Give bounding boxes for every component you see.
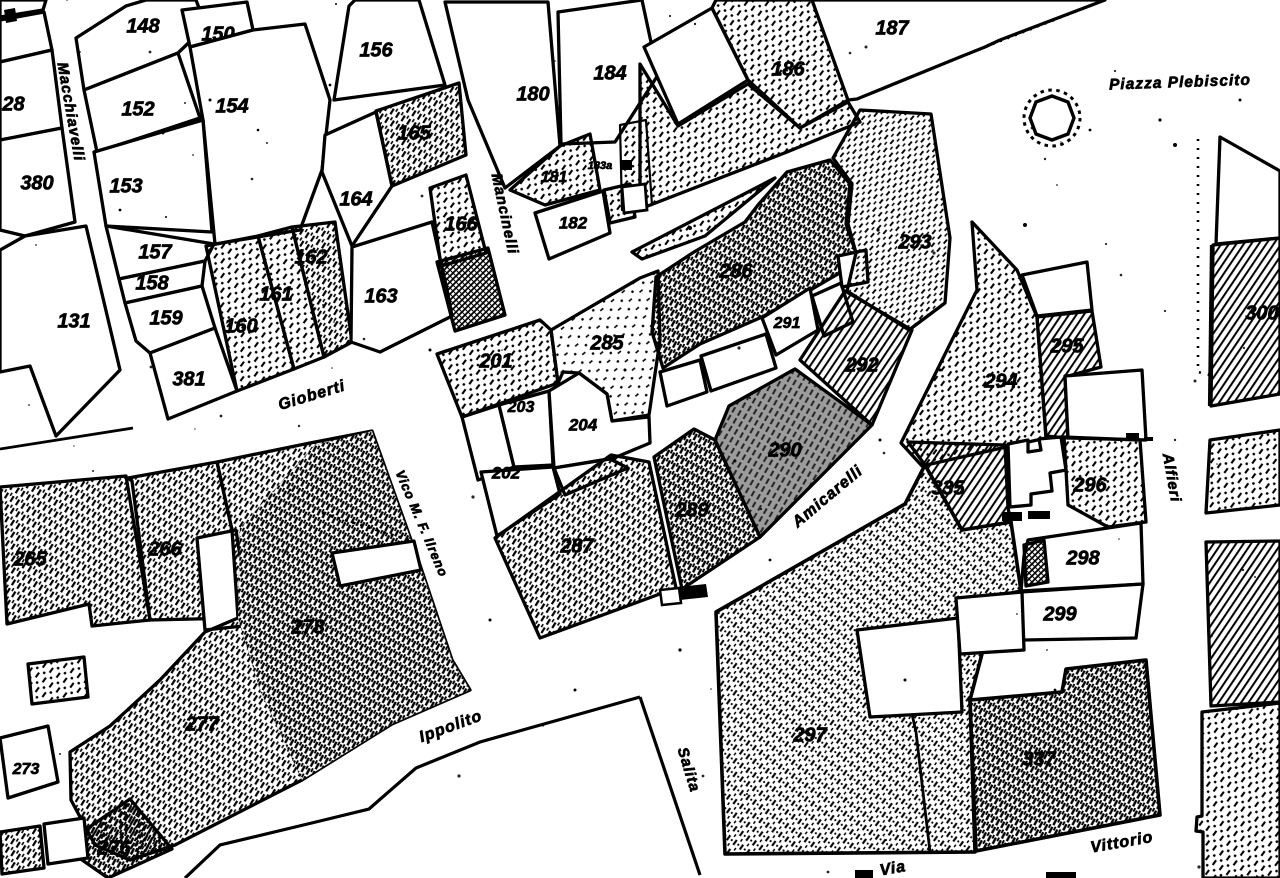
svg-text:285: 285: [589, 332, 624, 354]
svg-text:157: 157: [138, 241, 172, 263]
svg-text:183a: 183a: [588, 160, 612, 172]
svg-text:165: 165: [397, 122, 431, 144]
svg-text:296: 296: [1072, 474, 1107, 496]
svg-text:131: 131: [57, 310, 90, 332]
svg-text:166: 166: [444, 213, 478, 235]
svg-text:156: 156: [359, 39, 393, 61]
svg-text:286: 286: [718, 260, 753, 282]
svg-text:154: 154: [215, 95, 248, 117]
svg-text:294: 294: [983, 370, 1017, 392]
svg-text:278: 278: [290, 616, 325, 638]
svg-text:381: 381: [172, 368, 205, 390]
svg-text:203: 203: [507, 399, 535, 416]
svg-text:289: 289: [674, 499, 709, 521]
svg-text:277: 277: [184, 713, 219, 735]
svg-text:276: 276: [96, 837, 131, 859]
svg-text:337: 337: [1022, 748, 1056, 770]
svg-text:295: 295: [1049, 335, 1084, 357]
svg-text:128: 128: [0, 93, 26, 115]
svg-text:380: 380: [20, 172, 53, 194]
svg-text:187: 187: [875, 17, 909, 39]
svg-text:266: 266: [147, 538, 182, 560]
svg-text:158: 158: [135, 272, 169, 294]
svg-text:292: 292: [844, 354, 878, 376]
svg-text:186: 186: [771, 58, 805, 80]
svg-text:300: 300: [1245, 302, 1278, 324]
svg-text:293: 293: [897, 231, 931, 253]
svg-text:159: 159: [149, 307, 183, 329]
svg-text:180: 180: [516, 83, 549, 105]
svg-text:153: 153: [109, 175, 142, 197]
svg-text:162: 162: [294, 246, 327, 268]
svg-text:182: 182: [559, 213, 588, 232]
svg-text:287: 287: [559, 535, 594, 557]
svg-text:160: 160: [224, 315, 257, 337]
svg-text:Via: Via: [878, 858, 907, 878]
svg-text:265: 265: [12, 548, 47, 570]
svg-text:152: 152: [121, 98, 154, 120]
svg-text:297: 297: [792, 724, 827, 746]
svg-text:299: 299: [1042, 603, 1077, 625]
svg-text:290: 290: [767, 439, 801, 461]
svg-text:164: 164: [339, 188, 372, 210]
svg-text:298: 298: [1065, 547, 1100, 569]
svg-text:273: 273: [12, 761, 40, 778]
svg-text:204: 204: [568, 415, 598, 434]
svg-text:181: 181: [541, 169, 568, 186]
svg-text:184: 184: [593, 62, 626, 84]
svg-text:148: 148: [126, 15, 160, 37]
svg-text:291: 291: [773, 315, 801, 332]
svg-text:161: 161: [259, 283, 292, 305]
svg-text:202: 202: [491, 463, 521, 482]
svg-text:201: 201: [478, 350, 512, 372]
svg-text:163: 163: [364, 285, 397, 307]
